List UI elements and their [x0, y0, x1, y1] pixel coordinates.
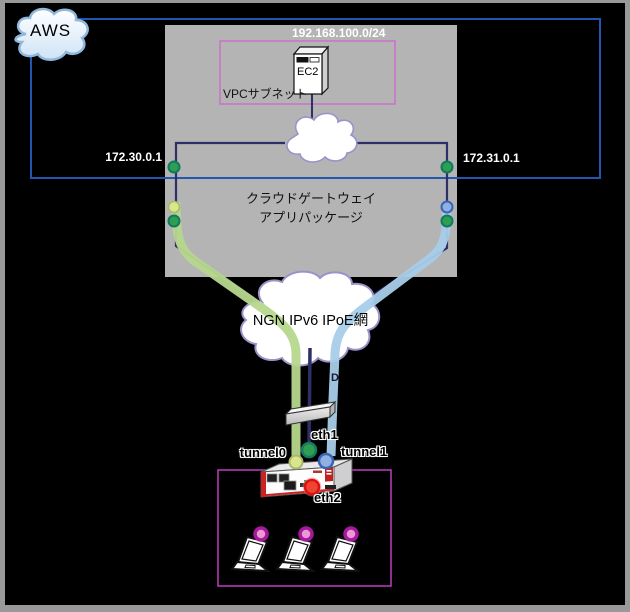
tunnel1-dot	[319, 454, 333, 468]
port-label-eth1: eth1	[311, 428, 338, 442]
eth1-link-line	[309, 348, 310, 450]
aws-edge-dot-left	[169, 162, 180, 173]
vpc-cidr-label: 192.168.100.0/24	[292, 27, 385, 40]
gateway-label-line2: アプリパッケージ	[165, 211, 457, 225]
eth1-dot	[302, 443, 316, 457]
laptop-icon	[232, 537, 268, 571]
partial-text-fragment: D	[331, 372, 339, 384]
client-dot	[255, 528, 267, 540]
port-label-tunnel1: tunnel1	[341, 445, 387, 459]
port-label-tunnel0: tunnel0	[228, 446, 286, 460]
diagram-layer: EC2	[0, 0, 630, 612]
vpc-cloud-icon	[287, 113, 357, 162]
client-dot	[300, 528, 312, 540]
aws-label: AWS	[30, 22, 71, 41]
laptop-icon	[277, 537, 313, 571]
ec2-label: EC2	[297, 66, 318, 78]
port-label-eth2: eth2	[314, 491, 341, 505]
client-dot	[345, 528, 357, 540]
network-diagram: EC2	[0, 0, 630, 612]
ngn-label: NGN IPv6 IPoE網	[243, 314, 378, 330]
tunnel0-dot	[290, 456, 303, 469]
laptop-icon	[322, 537, 358, 571]
ip-label-left: 172.30.0.1	[98, 151, 162, 164]
ip-label-right: 172.31.0.1	[463, 152, 520, 165]
gateway-label-line1: クラウドゲートウェイ	[165, 192, 457, 206]
aws-edge-dot-right	[442, 162, 453, 173]
vpc-subnet-label: VPCサブネット	[223, 88, 308, 101]
